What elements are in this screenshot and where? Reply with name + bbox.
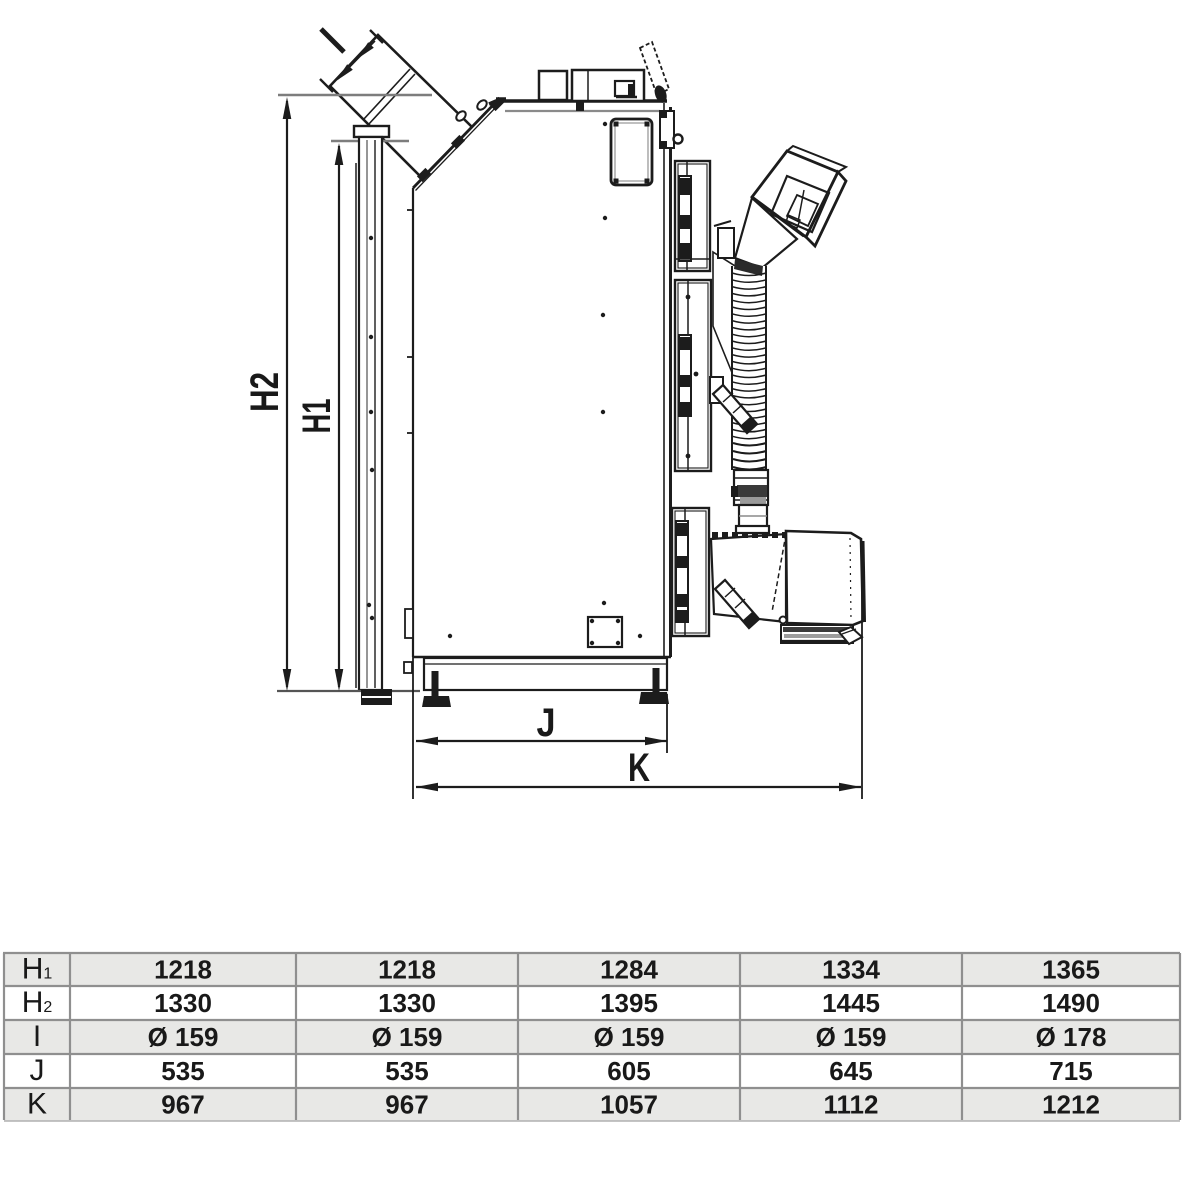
svg-text:1334: 1334 — [822, 955, 880, 985]
svg-text:H2: H2 — [22, 986, 53, 1019]
svg-text:Ø 159: Ø 159 — [816, 1022, 887, 1052]
svg-text:1212: 1212 — [1042, 1090, 1100, 1120]
svg-text:Ø 178: Ø 178 — [1036, 1022, 1107, 1052]
svg-text:967: 967 — [161, 1090, 204, 1120]
svg-text:1057: 1057 — [600, 1090, 658, 1120]
svg-text:H2: H2 — [243, 372, 287, 412]
svg-text:535: 535 — [385, 1056, 428, 1086]
svg-text:1395: 1395 — [600, 988, 658, 1018]
svg-text:715: 715 — [1049, 1056, 1092, 1086]
svg-text:K: K — [27, 1088, 47, 1121]
svg-text:967: 967 — [385, 1090, 428, 1120]
svg-text:1330: 1330 — [378, 988, 436, 1018]
svg-text:K: K — [628, 746, 650, 790]
svg-text:1218: 1218 — [378, 955, 436, 985]
svg-text:1218: 1218 — [154, 955, 212, 985]
svg-text:1284: 1284 — [600, 955, 658, 985]
svg-text:Ø 159: Ø 159 — [372, 1022, 443, 1052]
svg-text:J: J — [537, 701, 556, 745]
svg-text:605: 605 — [607, 1056, 650, 1086]
svg-text:535: 535 — [161, 1056, 204, 1086]
svg-text:Ø 159: Ø 159 — [148, 1022, 219, 1052]
svg-text:1490: 1490 — [1042, 988, 1100, 1018]
svg-text:1365: 1365 — [1042, 955, 1100, 985]
svg-text:1445: 1445 — [822, 988, 880, 1018]
svg-text:J: J — [30, 1054, 45, 1087]
svg-text:H1: H1 — [295, 399, 339, 434]
svg-text:Ø 159: Ø 159 — [594, 1022, 665, 1052]
svg-text:1330: 1330 — [154, 988, 212, 1018]
svg-text:1112: 1112 — [824, 1090, 879, 1120]
svg-text:645: 645 — [829, 1056, 872, 1086]
svg-text:I: I — [33, 1020, 41, 1053]
